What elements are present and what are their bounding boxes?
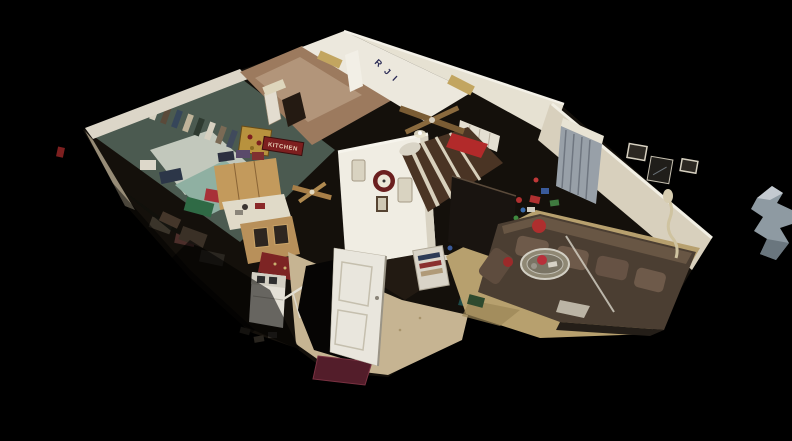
cabinet-door-panel	[273, 224, 289, 244]
rug-pattern	[284, 267, 287, 270]
shelf-unit	[413, 246, 449, 291]
ornate-frame	[352, 160, 365, 181]
frame	[627, 144, 647, 161]
tile-speckle	[419, 317, 422, 320]
fan-light	[310, 190, 315, 195]
clutter-item	[252, 152, 264, 160]
coffee-table	[521, 249, 569, 279]
washer-control	[269, 277, 277, 284]
dollhouse-3d-view[interactable]: KITCHEN R J I	[0, 0, 792, 441]
table-red-item	[537, 255, 547, 265]
rug-pattern	[274, 263, 277, 266]
counter-clutter	[242, 204, 248, 210]
cabinet-door-panel	[253, 227, 269, 247]
toy	[521, 208, 526, 213]
counter-clutter	[235, 210, 243, 215]
clutter-item	[550, 199, 560, 206]
red-throw-pillow	[532, 219, 546, 233]
door-knob	[375, 296, 379, 300]
picture-frame-mat	[378, 198, 386, 210]
tv-screen	[647, 156, 673, 183]
wall-picture-frame	[627, 144, 647, 161]
clutter-item	[534, 178, 539, 183]
panel-detail	[248, 135, 253, 140]
clutter-item	[448, 246, 453, 251]
panel-detail	[250, 146, 254, 150]
ornate-frame	[398, 178, 412, 202]
clutter-item	[527, 207, 535, 212]
open-front-door	[330, 248, 386, 366]
table-item	[531, 263, 537, 269]
toy	[516, 197, 522, 203]
frame	[680, 159, 698, 174]
wall-clock-center	[383, 180, 386, 183]
counter-clutter	[255, 203, 265, 209]
wall-tv-inset	[647, 156, 673, 183]
fan-light-glow	[418, 131, 422, 135]
clutter-item	[236, 150, 250, 158]
red-throw-pillow	[503, 257, 513, 267]
clutter-item	[140, 160, 156, 170]
panel-detail	[257, 141, 262, 146]
washer-control	[257, 276, 265, 283]
shelf-frame	[413, 246, 449, 291]
lamp-top	[663, 189, 673, 203]
dollhouse-scene: KITCHEN R J I	[0, 0, 792, 441]
tile-speckle	[399, 329, 402, 332]
wall-picture-frame	[680, 159, 698, 174]
clutter-item	[541, 188, 549, 194]
fan-hub	[429, 117, 435, 123]
